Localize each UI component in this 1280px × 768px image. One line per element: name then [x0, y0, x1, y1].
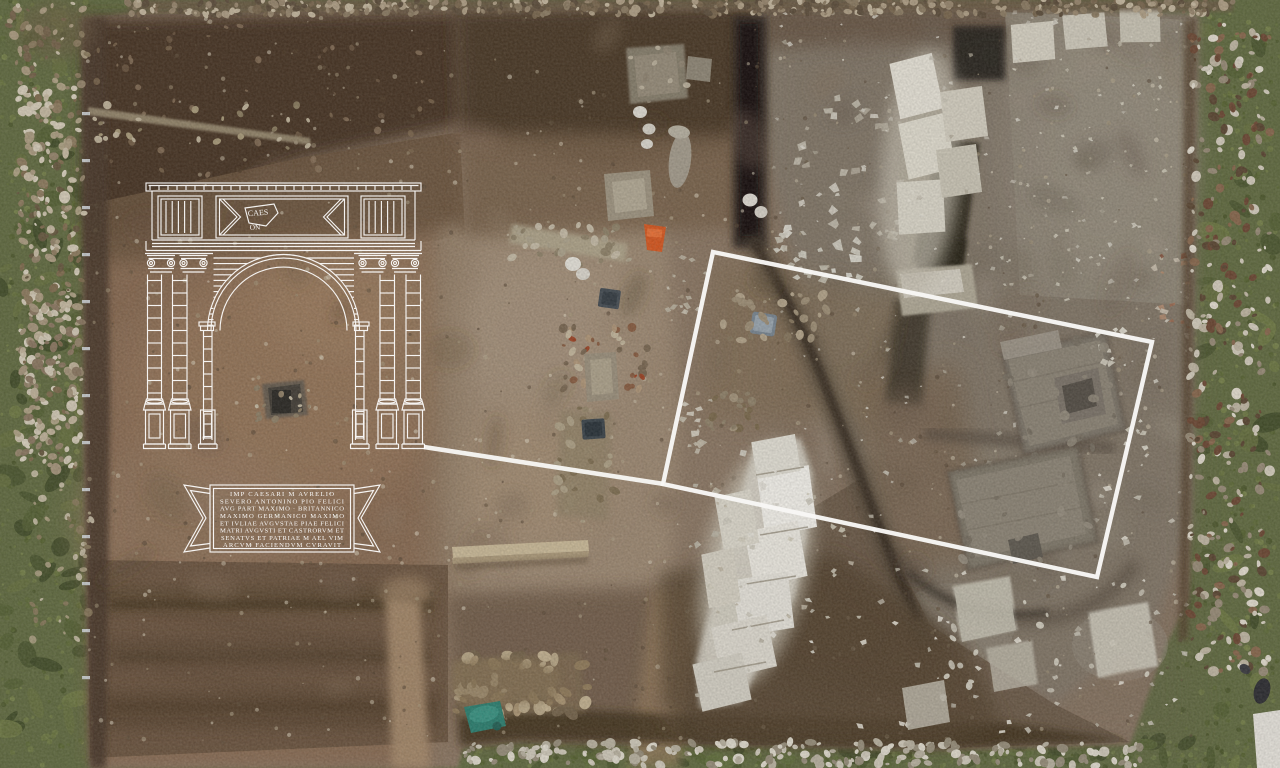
svg-text:AVG PART MAXIMO · BRITANNICO: AVG PART MAXIMO · BRITANNICO: [220, 506, 344, 513]
svg-text:ARCVM FACIENDVM CVRA: ARCVM FACIENDVM CVRAVIT: [223, 542, 341, 549]
svg-text:SENATVS ET PATRIAE M AEL V: SENATVS ET PATRIAE M AEL VIM: [221, 535, 343, 542]
svg-text:ET IVLIAE AVGVSTAE PIAE FEL: ET IVLIAE AVGVSTAE PIAE FELICI: [220, 520, 344, 527]
svg-text:MAXIMO GERMANICO MAXIMO: MAXIMO GERMANICO MAXIMO: [220, 513, 344, 520]
svg-text:CAES: CAES: [248, 208, 269, 218]
svg-text:MATRI AVGVSTI ET CASTRORVM ET: MATRI AVGVSTI ET CASTRORVM ET: [220, 528, 344, 535]
svg-text:IMP CAESARI M AVRELIO: IMP CAESARI M AVRELIO: [230, 491, 334, 498]
svg-text:NO: NO: [249, 222, 261, 232]
svg-text:SEVERO ANTONINO PIO FELICI: SEVERO ANTONINO PIO FELICI: [220, 498, 344, 505]
